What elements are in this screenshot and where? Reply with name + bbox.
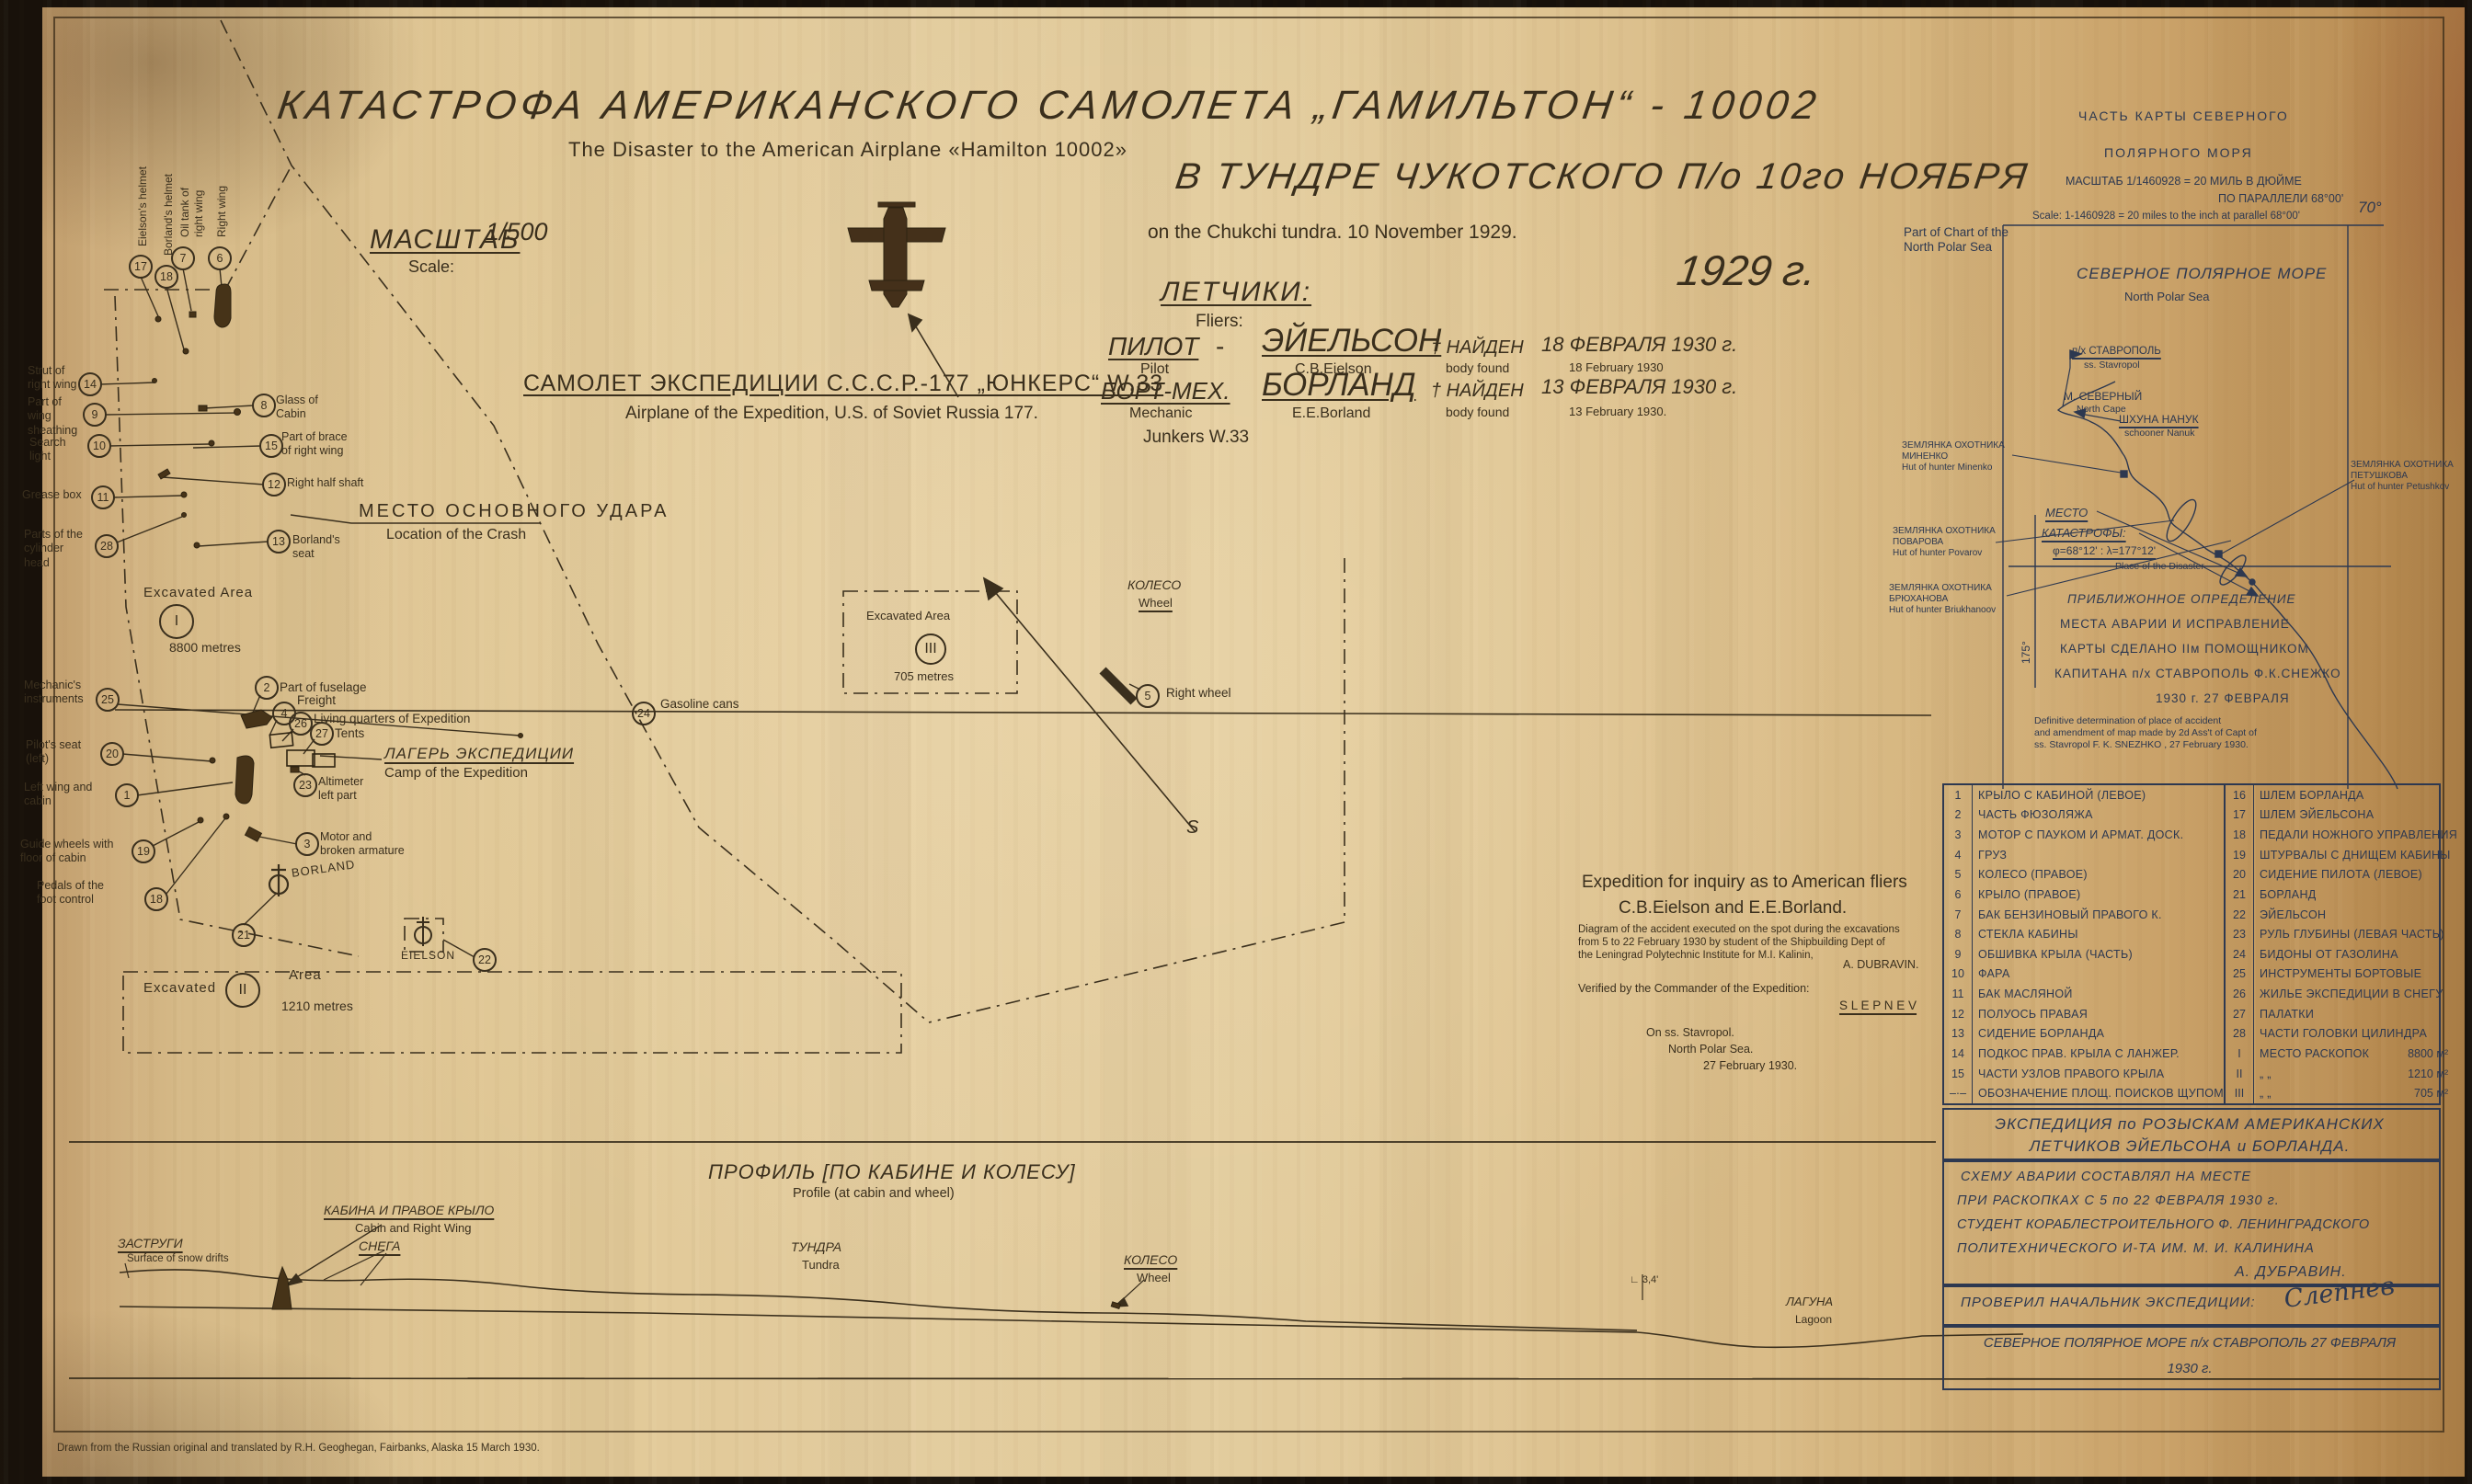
callout-20: 20 xyxy=(100,742,124,766)
legend-row-24: 24БИДОНЫ ОТ ГАЗОЛИНА xyxy=(2226,944,2457,965)
legend-row-number: III xyxy=(2226,1083,2254,1103)
map-approx-3: КАРТЫ СДЕЛАНО IIм ПОМОЩНИКОМ xyxy=(2060,642,2309,656)
legend-row-6: 6КРЫЛО (ПРАВОЕ) xyxy=(1944,885,2224,905)
label-living-quarters: Living quarters of Expedition xyxy=(314,712,470,726)
legend-row-text: „ „ xyxy=(2254,1067,2408,1080)
legend-row-number: 24 xyxy=(2226,944,2254,965)
legend-row-number: 22 xyxy=(2226,905,2254,925)
en-title-line1: The Disaster to the American Airplane «H… xyxy=(568,138,1127,163)
borland-found-ru: † НАЙДЕН xyxy=(1431,380,1524,402)
legend-row-1: 1КРЫЛО С КАБИНОЙ (ЛЕВОЕ) xyxy=(1944,785,2224,805)
legend-row-text: БАК БЕНЗИНОВЫЙ ПРАВОГО К. xyxy=(1973,908,2224,921)
legend-row-number: 4 xyxy=(1944,845,1973,865)
callout-I: I xyxy=(159,604,194,639)
place-date-box: СЕВЕРНОЕ ПОЛЯРНОЕ МОРЕ п/х СТАВРОПОЛЬ 27… xyxy=(1942,1324,2441,1390)
profile-wheel-en: Wheel xyxy=(1137,1271,1171,1285)
legend-row-number: 20 xyxy=(2226,865,2254,885)
verified-label: ПРОВЕРИЛ НАЧАЛЬНИК ЭКСПЕДИЦИИ: xyxy=(1961,1295,2256,1311)
map-approx-1: ПРИБЛИЖОННОЕ ОПРЕДЕЛЕНИЕ xyxy=(2067,592,2296,607)
compass-line xyxy=(984,578,1196,832)
label-pedals: Pedals of the foot control xyxy=(37,879,104,908)
callout-27: 27 xyxy=(310,722,334,746)
callout-17: 17 xyxy=(129,255,153,279)
callout-6: 6 xyxy=(208,246,232,270)
diagram-credit-box: СХЕМУ АВАРИИ СОСТАВЛЯЛ НА МЕСТЕ ПРИ РАСК… xyxy=(1942,1160,2441,1287)
map-approx-5: 1930 г. 27 ФЕВРАЛЯ xyxy=(2156,691,2290,706)
pilot-dash: - xyxy=(1216,331,1224,362)
legend-row-text: МОТОР С ПАУКОМ И АРМАТ. ДОСК. xyxy=(1973,828,2224,841)
legend-row-text: КРЫЛО (ПРАВОЕ) xyxy=(1973,888,2224,901)
ru-title-line1: КАТАСТРОФА АМЕРИКАНСКОГО САМОЛЕТА „ГАМИЛ… xyxy=(274,81,1823,131)
ru-title-line2: В ТУНДРЕ ЧУКОТСКОГО П/о 10го НОЯБРЯ xyxy=(1173,154,2032,200)
map-nanuk-ru: ШХУНА НАНУК xyxy=(2119,413,2199,427)
altimeter-part xyxy=(291,767,299,772)
legend-row-number: 27 xyxy=(2226,1004,2254,1024)
legend-row-23: 23РУЛЬ ГЛУБИНЫ (ЛЕВАЯ ЧАСТЬ) xyxy=(2226,924,2457,944)
map-stavropol-ru: п/х СТАВРОПОЛЬ xyxy=(2072,345,2161,358)
legend-row-15: 15ЧАСТИ УЗЛОВ ПРАВОГО КРЫЛА xyxy=(1944,1064,2224,1084)
legend-row-5: 5КОЛЕСО (ПРАВОЕ) xyxy=(1944,865,2224,885)
right-wing-part xyxy=(214,284,231,327)
legend-row-20: 20СИДЕНИЕ ПИЛОТА (ЛЕВОЕ) xyxy=(2226,865,2457,885)
legend-row-III: III„ „705 м² xyxy=(2226,1083,2457,1103)
credit-line2: ПРИ РАСКОПКАХ С 5 по 22 ФЕВРАЛЯ 1930 г. xyxy=(1957,1193,2280,1210)
callout-12: 12 xyxy=(262,473,286,497)
map-north-cape-ru: М. СЕВЕРНЫЙ xyxy=(2064,390,2142,404)
wheel-icon xyxy=(1103,670,1134,702)
map-briukhanov: ЗЕМЛЯНКА ОХОТНИКА БРЮХАНОВА Hut of hunte… xyxy=(1889,583,1996,617)
borland-en: E.E.Borland xyxy=(1292,405,1370,423)
map-meridian-175: 175° xyxy=(2020,641,2033,664)
legend-row-2: 2ЧАСТЬ ФЮЗОЛЯЖА xyxy=(1944,805,2224,826)
legend-row-text: КОЛЕСО (ПРАВОЕ) xyxy=(1973,868,2224,881)
excavated-area-2-size: 1210 metres xyxy=(281,999,353,1014)
on-ss-stavropol: On ss. Stavropol. xyxy=(1646,1026,1734,1040)
legend-row-text: ИНСТРУМЕНТЫ БОРТОВЫЕ xyxy=(2254,967,2457,980)
map-povarov: ЗЕМЛЯНКА ОХОТНИКА ПОВАРОВА Hut of hunter… xyxy=(1893,526,1996,560)
map-sea-en: North Polar Sea xyxy=(2124,290,2210,304)
borland-grave-icon xyxy=(269,864,288,896)
map-mesto: МЕСТО xyxy=(2045,506,2088,520)
callout-1: 1 xyxy=(115,783,139,807)
legend-right-column: 16ШЛЕМ БОРЛАНДА17ШЛЕМ ЭЙЕЛЬСОНА18ПЕДАЛИ … xyxy=(2226,785,2457,1103)
map-minenko: ЗЕМЛЯНКА ОХОТНИКА МИНЕНКО Hut of hunter … xyxy=(1902,440,2005,474)
legend-row-value: 705 м² xyxy=(2414,1087,2457,1100)
fuselage-part xyxy=(241,710,272,728)
callout-14: 14 xyxy=(78,372,102,396)
legend-row-number: 1 xyxy=(1944,785,1973,805)
legend-row-number: 23 xyxy=(2226,924,2254,944)
excavated-area-3: Excavated Area xyxy=(866,609,950,623)
legend-row-28: 28ЧАСТИ ГОЛОВКИ ЦИЛИНДРА xyxy=(2226,1024,2457,1045)
pilot-ru: ПИЛОТ xyxy=(1108,331,1198,362)
label-borlands-seat: Borland's seat xyxy=(292,533,340,562)
legend-row-22: 22ЭЙЕЛЬСОН xyxy=(2226,905,2457,925)
map-scale-ru-2: ПО ПАРАЛЛЕЛИ 68°00' xyxy=(2218,192,2343,206)
camp-ru: ЛАГЕРЬ ЭКСПЕДИЦИИ xyxy=(384,745,574,764)
label-brace: Part of brace of right wing xyxy=(281,430,348,459)
eielson-date-ru: 18 ФЕВРАЛЯ 1930 г. xyxy=(1541,333,1737,358)
label-guide-wheels: Guide wheels with floor of cabin xyxy=(20,838,113,866)
callout-9: 9 xyxy=(83,403,107,427)
expedition-title-line1: ЭКСПЕДИЦИЯ по РОЗЫСКАМ АМЕРИКАНСКИХ xyxy=(1944,1115,2435,1135)
callout-23: 23 xyxy=(293,773,317,797)
inquiry-en-1: Expedition for inquiry as to American fl… xyxy=(1582,872,1907,893)
label-strut: Strut of right wing xyxy=(28,364,77,393)
profile-wheel-ru: КОЛЕСО xyxy=(1124,1252,1177,1268)
legend-row-text: ШЛЕМ БОРЛАНДА xyxy=(2254,789,2457,802)
legend-row-text: ЧАСТИ УЗЛОВ ПРАВОГО КРЫЛА xyxy=(1973,1067,2224,1080)
excavated-area-1-size: 8800 metres xyxy=(169,640,241,656)
callout-5: 5 xyxy=(1136,684,1160,708)
legend-row-text: БОРЛАНД xyxy=(2254,888,2457,901)
callout-10: 10 xyxy=(87,434,111,458)
label-right-wing: Right wing xyxy=(215,186,229,237)
profile-cabin-en: Cabin and Right Wing xyxy=(355,1221,471,1236)
callout-15: 15 xyxy=(259,434,283,458)
dubravin-en: A. DUBRAVIN. xyxy=(1843,958,1918,972)
borland-found-en: body found xyxy=(1446,405,1509,420)
fliers-ru: ЛЕТЧИКИ: xyxy=(1161,276,1311,310)
legend-row-18: 18ПЕДАЛИ НОЖНОГО УПРАВЛЕНИЯ xyxy=(2226,825,2457,845)
map-approx-4: КАПИТАНА п/х СТАВРОПОЛЬ Ф.К.СНЕЖКО xyxy=(2054,667,2341,681)
profile-title-en: Profile (at cabin and wheel) xyxy=(793,1186,955,1203)
profile-zastrugi-ru: ЗАСТРУГИ xyxy=(118,1236,183,1251)
legend-row-17: 17ШЛЕМ ЭЙЕЛЬСОНА xyxy=(2226,805,2457,826)
legend-row-number: 17 xyxy=(2226,805,2254,826)
legend-row-7: 7БАК БЕНЗИНОВЫЙ ПРАВОГО К. xyxy=(1944,905,2224,925)
legend-row-number: 26 xyxy=(2226,984,2254,1004)
map-stavropol-en: ss. Stavropol xyxy=(2084,360,2140,371)
label-pilots-seat: Pilot's seat (left) xyxy=(26,738,81,767)
motor-part xyxy=(245,827,261,841)
place-date-line1: СЕВЕРНОЕ ПОЛЯРНОЕ МОРЕ п/х СТАВРОПОЛЬ 27… xyxy=(1944,1335,2435,1352)
legend-row-text: МЕСТО РАСКОПОК xyxy=(2254,1047,2408,1060)
legend-row-text: ПАЛАТКИ xyxy=(2254,1008,2457,1021)
scale-label-en: Scale: xyxy=(408,257,454,278)
label-right-wheel: Right wheel xyxy=(1166,686,1231,701)
legend-row-12: 12ПОЛУОСЬ ПРАВАЯ xyxy=(1944,1004,2224,1024)
callout-8: 8 xyxy=(252,394,276,417)
wheel-en: Wheel xyxy=(1139,596,1173,611)
legend-row-number: 3 xyxy=(1944,825,1973,845)
excavated-2-word1: Excavated xyxy=(143,980,216,997)
translator-note: Drawn from the Russian original and tran… xyxy=(57,1442,540,1455)
profile-snega: СНЕГА xyxy=(359,1239,400,1254)
excavated-area-1: Excavated Area xyxy=(143,585,253,601)
label-gasoline: Gasoline cans xyxy=(660,697,739,712)
map-sea-ru: СЕВЕРНОЕ ПОЛЯРНОЕ МОРЕ xyxy=(2077,265,2327,284)
title-year: 1929 г. xyxy=(1674,245,1819,296)
label-half-shaft: Right half shaft xyxy=(287,476,363,490)
legend-row-text: ЭЙЕЛЬСОН xyxy=(2254,908,2457,921)
legend-row-number: 14 xyxy=(1944,1044,1973,1064)
legend-row-value: 1210 м² xyxy=(2408,1067,2457,1080)
legend-row-19: 19ШТУРВАЛЫ С ДНИЩЕМ КАБИНЫ xyxy=(2226,845,2457,865)
wheel-ru: КОЛЕСО xyxy=(1127,577,1181,593)
legend-row-number: 25 xyxy=(2226,965,2254,985)
profile-lagoon-en: Lagoon xyxy=(1795,1313,1832,1327)
scale-value: 1/500 xyxy=(486,217,548,247)
legend-row-text: СИДЕНИЕ ПИЛОТА (ЛЕВОЕ) xyxy=(2254,868,2457,881)
legend-row-text: КРЫЛО С КАБИНОЙ (ЛЕВОЕ) xyxy=(1973,789,2224,802)
profile-zastrugi-en: Surface of snow drifts xyxy=(127,1252,229,1265)
pilot-en: Pilot xyxy=(1140,360,1169,379)
borland-date-en: 13 February 1930. xyxy=(1569,405,1666,419)
legend-row-text: „ „ xyxy=(2254,1087,2414,1100)
fliers-en: Fliers: xyxy=(1196,311,1243,332)
callout-2: 2 xyxy=(255,676,279,700)
legend-row-number: 7 xyxy=(1944,905,1973,925)
cabin-part xyxy=(235,756,254,804)
map-scale-ru: МАСШТАБ 1/1460928 = 20 МИЛЬ В ДЮЙМЕ xyxy=(2066,175,2302,188)
expedition-plane-en: Airplane of the Expedition, U.S. of Sovi… xyxy=(625,403,1038,424)
label-eielson-grave: EIELSON xyxy=(401,949,455,963)
legend-left-column: 1КРЫЛО С КАБИНОЙ (ЛЕВОЕ)2ЧАСТЬ ФЮЗОЛЯЖА3… xyxy=(1944,785,2226,1103)
legend-row-text: ПОЛУОСЬ ПРАВАЯ xyxy=(1973,1008,2224,1021)
legend-row-number: 19 xyxy=(2226,845,2254,865)
excavated-area-3-size: 705 metres xyxy=(894,669,954,684)
date-27feb: 27 February 1930. xyxy=(1703,1059,1797,1073)
callout-III: III xyxy=(915,634,946,665)
label-glass-cabin: Glass of Cabin xyxy=(276,394,318,422)
profile-lagoon-ru: ЛАГУНА xyxy=(1786,1295,1833,1309)
legend-row-10: 10ФАРА xyxy=(1944,965,2224,985)
callout-3: 3 xyxy=(295,832,319,856)
map-approx-en: Definitive determination of place of acc… xyxy=(2034,715,2257,750)
callout-25: 25 xyxy=(96,688,120,712)
mechanic-en: Mechanic xyxy=(1129,405,1192,423)
legend-row-14: 14ПОДКОС ПРАВ. КРЫЛА С ЛАНЖЕР. xyxy=(1944,1044,2224,1064)
legend-row-number: 13 xyxy=(1944,1024,1973,1045)
legend-row-number: 2 xyxy=(1944,805,1973,826)
callout-11: 11 xyxy=(91,485,115,509)
legend-row-II: II„ „1210 м² xyxy=(2226,1064,2457,1084)
map-place-disaster: Place of the Disaster xyxy=(2115,561,2204,573)
compass-south: S xyxy=(1186,816,1198,839)
callout-II: II xyxy=(225,973,260,1008)
map-part-of-chart: Part of Chart of the North Polar Sea xyxy=(1904,225,2008,256)
legend-row-text: БАК МАСЛЯНОЙ xyxy=(1973,987,2224,1000)
legend-row-number: 15 xyxy=(1944,1064,1973,1084)
legend-row-text: ОБШИВКА КРЫЛА (ЧАСТЬ) xyxy=(1973,948,2224,961)
label-tents: Tents xyxy=(335,726,364,741)
callout-19: 19 xyxy=(132,839,155,863)
label-sheathing: Part of wing sheathing xyxy=(28,395,77,438)
eielson-found-ru: † НАЙДЕН xyxy=(1431,337,1524,359)
legend-row-26: 26ЖИЛЬЕ ЭКСПЕДИЦИИ В СНЕГУ xyxy=(2226,984,2457,1004)
legend-row-16: 16ШЛЕМ БОРЛАНДА xyxy=(2226,785,2457,805)
legend-row-number: 11 xyxy=(1944,984,1973,1004)
legend-row-number: 28 xyxy=(2226,1024,2254,1045)
crash-location-ru: МЕСТО ОСНОВНОГО УДАРА xyxy=(359,500,669,522)
map-katastrofy: КАТАСТРОФЫ: xyxy=(2042,526,2126,541)
callout-21: 21 xyxy=(232,923,256,947)
label-grease-box: Grease box xyxy=(22,488,82,502)
legend-row-4: 4ГРУЗ xyxy=(1944,845,2224,865)
credit-line1: СХЕМУ АВАРИИ СОСТАВЛЯЛ НА МЕСТЕ xyxy=(1961,1170,2251,1186)
label-left-wing-cabin: Left wing and cabin xyxy=(24,781,92,809)
legend-row-13: 13СИДЕНИЕ БОРЛАНДА xyxy=(1944,1024,2224,1045)
living-quarters-box xyxy=(287,750,315,766)
legend-row-text: ШТУРВАЛЫ С ДНИЩЕМ КАБИНЫ xyxy=(2254,849,2457,862)
expedition-title-box: ЭКСПЕДИЦИЯ по РОЗЫСКАМ АМЕРИКАНСКИХ ЛЕТЧ… xyxy=(1942,1108,2441,1160)
callout-22: 22 xyxy=(473,948,497,972)
label-search-light: Search light xyxy=(29,436,66,464)
legend-row-text: ОБОЗНАЧЕНИЕ ПЛОЩ. ПОИСКОВ ЩУПОМ xyxy=(1973,1087,2224,1100)
legend-row-text: ПОДКОС ПРАВ. КРЫЛА С ЛАНЖЕР. xyxy=(1973,1047,2224,1060)
profile-cabin-ru: КАБИНА И ПРАВОЕ КРЫЛО xyxy=(324,1203,494,1218)
profile-title-ru: ПРОФИЛЬ [ПО КАБИНЕ И КОЛЕСУ] xyxy=(708,1160,1076,1185)
legend-row-11: 11БАК МАСЛЯНОЙ xyxy=(1944,984,2224,1004)
legend-row-8: 8СТЕКЛА КАБИНЫ xyxy=(1944,924,2224,944)
junkers-plane-icon xyxy=(848,202,945,307)
map-approx-2: МЕСТА АВАРИИ И ИСПРАВЛЕНИЕ xyxy=(2060,617,2290,632)
callout-24: 24 xyxy=(632,702,656,725)
legend-row-number: I xyxy=(2226,1044,2254,1064)
legend-row-number: 5 xyxy=(1944,865,1973,885)
borland-date-ru: 13 ФЕВРАЛЯ 1930 г. xyxy=(1541,375,1737,400)
mechanic-ru: БОРТ-МЕХ. xyxy=(1101,377,1230,406)
legend-row-text: ФАРА xyxy=(1973,967,2224,980)
legend-row-number: 12 xyxy=(1944,1004,1973,1024)
debris-boundary xyxy=(104,20,1345,1053)
slepnev-en: S L E P N E V xyxy=(1839,999,1917,1013)
legend-row-number: 16 xyxy=(2226,785,2254,805)
inquiry-en-2: C.B.Eielson and E.E.Borland. xyxy=(1619,897,1847,919)
label-cylinder-head: Parts of the cylinder head xyxy=(24,528,83,570)
callout-7: 7 xyxy=(171,246,195,270)
eielson-found-en: body found xyxy=(1446,360,1509,376)
expedition-plane-type: Junkers W.33 xyxy=(1143,427,1249,448)
label-mechanics-instruments: Mechanic's instruments xyxy=(24,679,84,707)
legend-row-3: 3МОТОР С ПАУКОМ И АРМАТ. ДОСК. xyxy=(1944,825,2224,845)
borland-ru: БОРЛАНД xyxy=(1262,366,1416,405)
credit-line4: ПОЛИТЕХНИЧЕСКОГО И-ТА ИМ. М. И. КАЛИНИНА xyxy=(1957,1241,2315,1258)
map-lat-70: 70° xyxy=(2358,199,2382,218)
eielson-ru: ЭЙЕЛЬСОН xyxy=(1262,322,1441,361)
legend-row-9: 9ОБШИВКА КРЫЛА (ЧАСТЬ) xyxy=(1944,944,2224,965)
legend-row-text: ЖИЛЬЕ ЭКСПЕДИЦИИ В СНЕГУ xyxy=(2254,987,2457,1000)
legend-row-value: 8800 м² xyxy=(2408,1047,2457,1060)
label-borlands-helmet: Borland's helmet xyxy=(162,174,176,256)
callout-18: 18 xyxy=(144,887,168,911)
legend-row-text: ЧАСТЬ ФЮЗОЛЯЖА xyxy=(1973,808,2224,821)
expedition-title-line2: ЛЕТЧИКОВ ЭЙЕЛЬСОНА и БОРЛАНДА. xyxy=(1944,1137,2435,1157)
en-title-line2: on the Chukchi tundra. 10 November 1929. xyxy=(1148,221,1517,245)
profile-tundra-en: Tundra xyxy=(802,1258,840,1273)
label-motor: Motor and broken armature xyxy=(320,830,405,859)
legend-row-27: 27ПАЛАТКИ xyxy=(2226,1004,2457,1024)
profile-drawing xyxy=(120,1225,2023,1347)
legend-row-number: 6 xyxy=(1944,885,1973,905)
legend-row-number: –·– xyxy=(1944,1083,1973,1103)
legend-row-text: СИДЕНИЕ БОРЛАНДА xyxy=(1973,1027,2224,1040)
callout-13: 13 xyxy=(267,530,291,554)
legend-row-text: ПЕДАЛИ НОЖНОГО УПРАВЛЕНИЯ xyxy=(2254,828,2457,841)
expedition-plane-ru: САМОЛЕТ ЭКСПЕДИЦИИ С.С.С.Р.-177 „ЮНКЕРС“… xyxy=(523,370,1163,398)
crash-location-en: Location of the Crash xyxy=(386,526,526,544)
eielson-date-en: 18 February 1930 xyxy=(1569,360,1664,375)
legend-table: 1КРЫЛО С КАБИНОЙ (ЛЕВОЕ)2ЧАСТЬ ФЮЗОЛЯЖА3… xyxy=(1942,783,2441,1105)
map-title-ru-1: ЧАСТЬ КАРТЫ СЕВЕРНОГО xyxy=(2078,108,2289,124)
map-petushkov: ЗЕМЛЯНКА ОХОТНИКА ПЕТУШКОВА Hut of hunte… xyxy=(2351,460,2454,494)
legend-row-text: ГРУЗ xyxy=(1973,849,2224,862)
legend-row-25: 25ИНСТРУМЕНТЫ БОРТОВЫЕ xyxy=(2226,965,2457,985)
profile-depth: ∟ 3,4' xyxy=(1630,1274,1658,1286)
profile-wreck-hump xyxy=(272,1267,292,1309)
label-eielsons-helmet: Eielson's helmet xyxy=(136,166,150,246)
legend-row-I: IМЕСТО РАСКОПОК8800 м² xyxy=(2226,1044,2457,1064)
map-nanuk-en: schooner Nanuk xyxy=(2124,428,2194,439)
sheet: КАТАСТРОФА АМЕРИКАНСКОГО САМОЛЕТА „ГАМИЛ… xyxy=(0,0,2472,1484)
north-polar-sea-en3: North Polar Sea. xyxy=(1668,1043,1753,1056)
credit-line3: СТУДЕНТ КОРАБЛЕСТРОИТЕЛЬНОГО Ф. ЛЕНИНГРА… xyxy=(1957,1217,2370,1234)
legend-row-number: 21 xyxy=(2226,885,2254,905)
legend-row-text: РУЛЬ ГЛУБИНЫ (ЛЕВАЯ ЧАСТЬ) xyxy=(2254,928,2457,941)
legend-row-text: ШЛЕМ ЭЙЕЛЬСОНА xyxy=(2254,808,2457,821)
label-freight: Freight xyxy=(297,693,336,708)
legend-row-21: 21БОРЛАНД xyxy=(2226,885,2457,905)
verified-box: ПРОВЕРИЛ НАЧАЛЬНИК ЭКСПЕДИЦИИ: Слепнев xyxy=(1942,1284,2441,1328)
map-title-ru-2: ПОЛЯРНОГО МОРЯ xyxy=(2104,145,2253,161)
callout-28: 28 xyxy=(95,534,119,558)
callout-18: 18 xyxy=(154,265,178,289)
eielson-grave-icon xyxy=(415,917,431,946)
legend-row-number: 9 xyxy=(1944,944,1973,965)
freight-box xyxy=(269,733,292,748)
legend-row-number: 10 xyxy=(1944,965,1973,985)
map-scale-en: Scale: 1-1460928 = 20 miles to the inch … xyxy=(2032,210,2300,223)
label-altimeter: Altimeter left part xyxy=(318,775,363,804)
legend-row-text: БИДОНЫ ОТ ГАЗОЛИНА xyxy=(2254,948,2457,961)
verified-en: Verified by the Commander of the Expedit… xyxy=(1578,982,1810,996)
label-oil-tank: Oil tank of right wing xyxy=(178,188,205,237)
legend-row-text: ЧАСТИ ГОЛОВКИ ЦИЛИНДРА xyxy=(2254,1027,2457,1040)
excavated-2-word2: Area xyxy=(289,967,322,984)
legend-row-text: СТЕКЛА КАБИНЫ xyxy=(1973,928,2224,941)
legend-row-number: 8 xyxy=(1944,924,1973,944)
legend-row-number: 18 xyxy=(2226,825,2254,845)
map-coords: φ=68°12' : λ=177°12' xyxy=(2053,544,2156,558)
profile-tundra-ru: ТУНДРА xyxy=(791,1239,841,1255)
camp-en: Camp of the Expedition xyxy=(384,765,528,782)
legend-row-–·–: –·–ОБОЗНАЧЕНИЕ ПЛОЩ. ПОИСКОВ ЩУПОМ xyxy=(1944,1083,2224,1103)
legend-row-number: II xyxy=(2226,1064,2254,1084)
place-date-line2: 1930 г. xyxy=(1944,1361,2435,1377)
diagram-credit-en: Diagram of the accident executed on the … xyxy=(1578,923,1900,962)
